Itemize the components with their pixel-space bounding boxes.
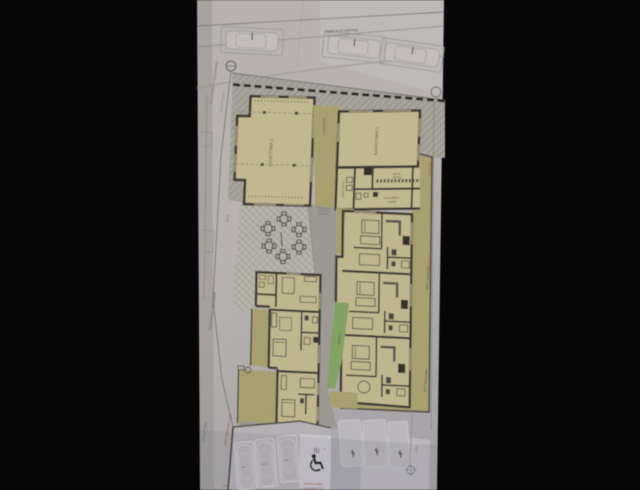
svg-text:ΔΙΑΔΡΟΜΟΣ: ΔΙΑΔΡΟΜΟΣ — [322, 117, 327, 135]
svg-text:ROOM: ROOM — [388, 200, 398, 204]
svg-text:ΒΟΗΘ.: ΒΟΗΘ. — [393, 172, 402, 176]
svg-text:ΚΑΤΑΣΤΗΜΑ 2: ΚΑΤΑΣΤΗΜΑ 2 — [373, 126, 379, 155]
svg-text:ΚΟΙΝ.ΤΟΥΑΛ.: ΚΟΙΝ.ΤΟΥΑΛ. — [341, 179, 346, 197]
svg-text:ΧΩΡΟΣ: ΧΩΡΟΣ — [393, 175, 403, 179]
